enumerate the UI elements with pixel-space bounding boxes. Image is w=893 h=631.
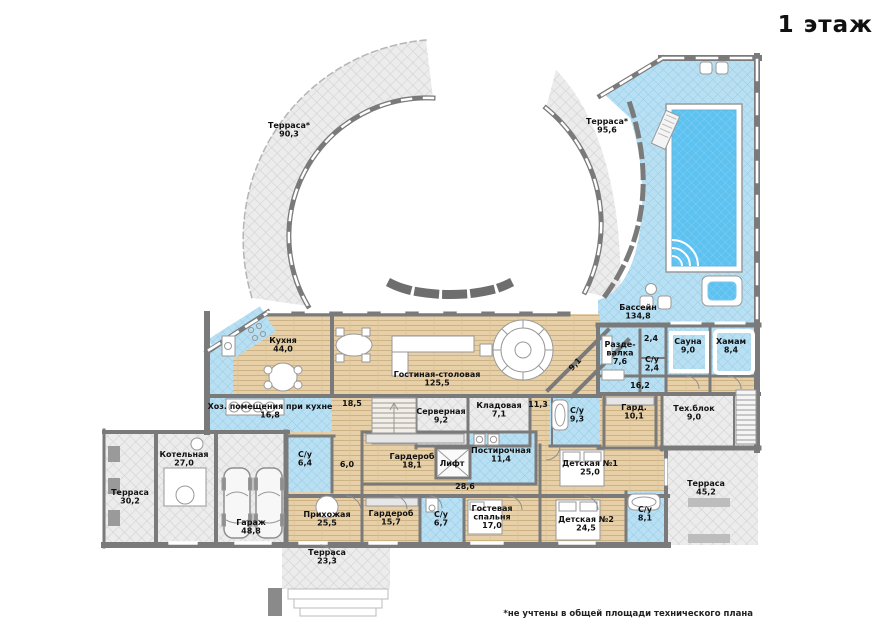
room-label-hall-16-2: 16,2 xyxy=(630,381,650,390)
terrace-top-right-floor xyxy=(546,70,620,300)
room-label-wc-6-7: С/у6,7 xyxy=(434,510,449,528)
jacuzzi-water xyxy=(708,282,736,300)
room-label-hall-6-0: 6,0 xyxy=(340,460,355,469)
room-label-room-2-4: 2,4 xyxy=(644,334,659,343)
room-label-hall-18-5: 18,5 xyxy=(342,399,362,408)
room-label-wc-6-4: С/у6,4 xyxy=(298,450,313,468)
footnote: *не учтены в общей площади технического … xyxy=(503,609,753,619)
room-label-hall-11-3: 11,3 xyxy=(528,400,548,409)
room-label-wc-8-1: С/у8,1 xyxy=(638,505,653,523)
room-label-hall-28-6: 28,6 xyxy=(455,482,475,491)
floor-plan-drawing: Терраса*90,3Терраса*95,6Бассейн134,8Кухн… xyxy=(0,0,893,631)
room-label-kitchen: Кухня44,0 xyxy=(269,336,297,354)
room-label-wc-2-4: С/у2,4 xyxy=(645,355,660,373)
room-label-wardrobe-10-1: Гард.10,1 xyxy=(621,403,647,421)
room-label-elevator: Лифт xyxy=(440,459,465,468)
terrace452-floor xyxy=(666,450,758,545)
floor-plan-page: 1 этаж xyxy=(0,0,893,631)
terrace-top-left-floor xyxy=(243,40,433,306)
room-label-wc-9-3: С/у9,3 xyxy=(570,406,585,424)
